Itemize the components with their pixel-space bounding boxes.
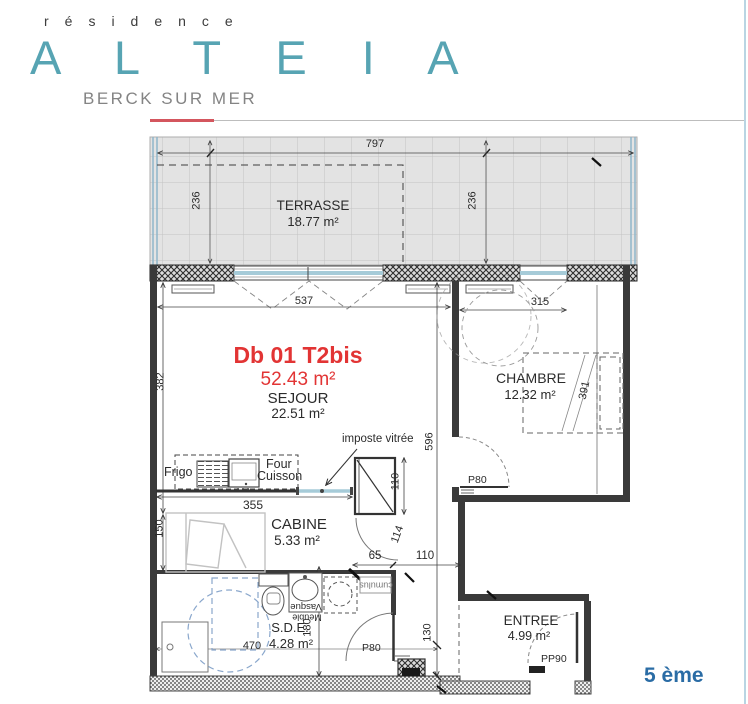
duct-bottom bbox=[398, 659, 425, 676]
cabine-bed bbox=[166, 513, 265, 572]
door-p80-sde: P80 bbox=[362, 643, 381, 654]
terrace bbox=[150, 137, 637, 265]
facade-wall bbox=[150, 265, 637, 281]
dim-797: 797 bbox=[340, 139, 410, 151]
dim-315: 315 bbox=[510, 297, 570, 309]
toilet bbox=[259, 574, 288, 615]
meuble-label: Meuble bbox=[287, 612, 327, 621]
shower-tray bbox=[162, 622, 208, 672]
dim-382: 382 bbox=[156, 362, 167, 402]
dim-470: 470 bbox=[232, 641, 272, 653]
dim-236-right: 236 bbox=[468, 181, 479, 221]
chambre-window bbox=[520, 266, 567, 280]
party-walls bbox=[150, 676, 591, 694]
sink-unit bbox=[229, 459, 259, 487]
cumulus-label: cumulus bbox=[356, 580, 396, 589]
dim-110-passage: 110 bbox=[405, 550, 445, 562]
wall-mark-3 bbox=[405, 573, 414, 582]
terrasse-area: 18.77 m² bbox=[258, 215, 368, 229]
floor-level-tag: 5 ème bbox=[644, 664, 704, 688]
vasque-label: Vasque bbox=[286, 601, 326, 611]
imposte-vitree-label: imposte vitrée bbox=[342, 433, 414, 445]
fridge bbox=[197, 461, 228, 487]
sejour-label: SEJOUR bbox=[248, 391, 348, 407]
dim-596: 596 bbox=[425, 422, 436, 462]
unit-total-area: 52.43 m² bbox=[198, 369, 398, 391]
brochure-page: résidence A L T E I A BERCK SUR MER bbox=[0, 0, 748, 704]
frigo-label: Frigo bbox=[164, 466, 192, 479]
cabine-area: 5.33 m² bbox=[252, 534, 342, 548]
dim-355: 355 bbox=[223, 499, 283, 512]
dim-537: 537 bbox=[274, 296, 334, 308]
cuisson-label: Cuisson bbox=[257, 470, 302, 483]
dim-65: 65 bbox=[355, 550, 395, 562]
entree-area: 4.99 m² bbox=[479, 630, 579, 643]
terrasse-label: TERRASSE bbox=[258, 199, 368, 213]
window-sills bbox=[172, 285, 513, 293]
chambre-area: 12.32 m² bbox=[480, 388, 580, 402]
bay-window bbox=[234, 266, 383, 280]
door-p80-chambre: P80 bbox=[468, 475, 487, 486]
dim-110-column: 110 bbox=[391, 462, 402, 502]
washing-machine bbox=[324, 577, 357, 613]
dim-236-left: 236 bbox=[192, 181, 203, 221]
dim-130: 130 bbox=[423, 613, 434, 653]
imposte-leader bbox=[326, 449, 357, 485]
dim-150: 150 bbox=[155, 509, 166, 549]
cabine-label: CABINE bbox=[254, 517, 344, 533]
door-pp90-entree: PP90 bbox=[541, 654, 567, 665]
sejour-area: 22.51 m² bbox=[248, 407, 348, 421]
unit-code: Db 01 T2bis bbox=[198, 342, 398, 369]
entree-label: ENTREE bbox=[481, 614, 581, 628]
turning-circle-chambre-2 bbox=[437, 269, 531, 363]
chambre-label: CHAMBRE bbox=[481, 371, 581, 386]
